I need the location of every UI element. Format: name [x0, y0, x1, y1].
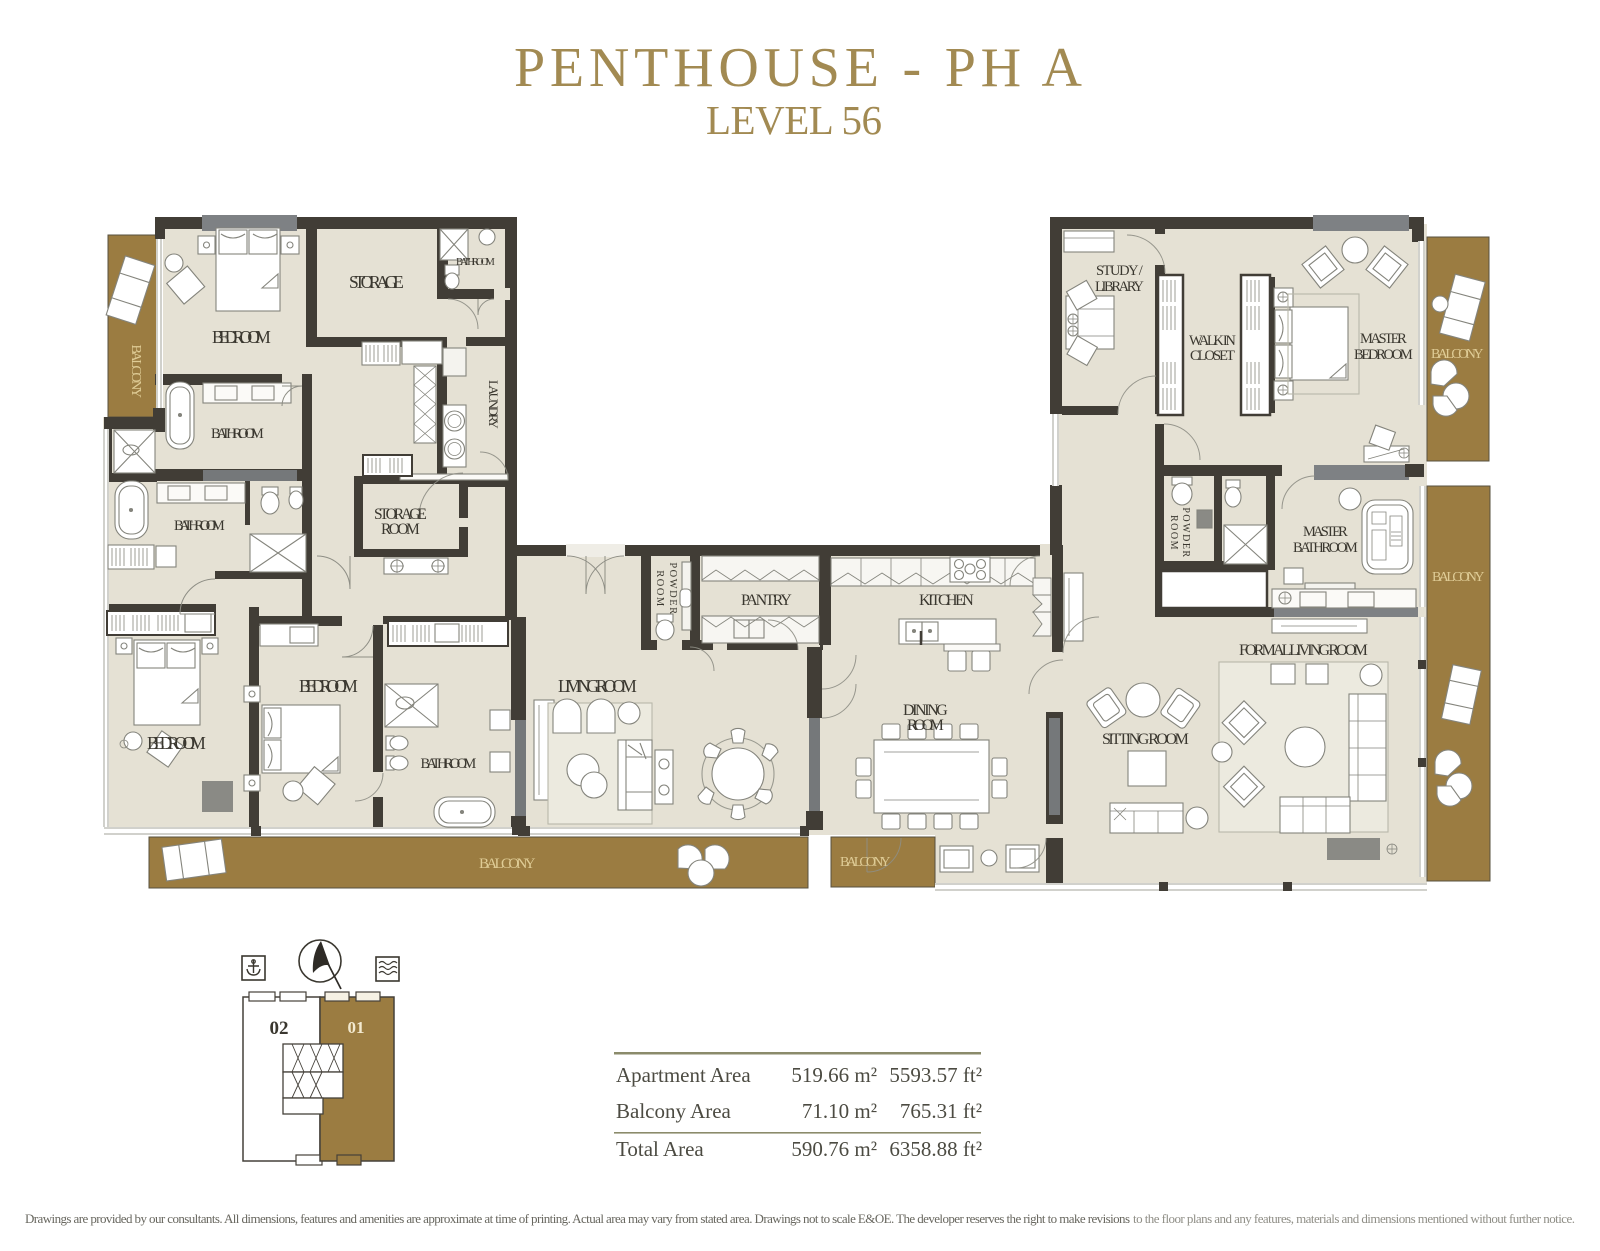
svg-text:71.10 m²: 71.10 m²: [802, 1099, 877, 1123]
svg-text:590.76 m²: 590.76 m²: [791, 1137, 877, 1161]
svg-text:MASTER: MASTER: [1360, 331, 1408, 347]
svg-text:LIVING ROOM: LIVING ROOM: [558, 676, 638, 696]
svg-text:Total Area: Total Area: [616, 1137, 704, 1161]
svg-text:LIBRARY: LIBRARY: [1095, 279, 1145, 295]
svg-text:BATHROOM: BATHROOM: [174, 518, 226, 534]
svg-text:PANTRY: PANTRY: [741, 592, 793, 609]
svg-text:WALK IN: WALK IN: [1189, 333, 1237, 349]
svg-text:BALCONY: BALCONY: [1432, 570, 1486, 585]
svg-text:BEDROOM: BEDROOM: [1354, 347, 1414, 363]
svg-text:BEDROOM: BEDROOM: [299, 676, 359, 696]
svg-text:BALCONY: BALCONY: [128, 345, 143, 400]
svg-text:POWDER: POWDER: [667, 562, 678, 615]
svg-text:SITTING ROOM: SITTING ROOM: [1102, 731, 1190, 748]
svg-text:BATHROOM: BATHROOM: [421, 756, 478, 772]
svg-text:BALCONY: BALCONY: [479, 856, 537, 872]
svg-text:CLOSET: CLOSET: [1190, 348, 1236, 364]
svg-text:BATHROOM: BATHROOM: [456, 257, 496, 268]
svg-text:PENTHOUSE - PH A: PENTHOUSE - PH A: [514, 37, 1086, 99]
svg-text:STUDY /: STUDY /: [1096, 263, 1144, 279]
svg-text:BATHROOM: BATHROOM: [211, 426, 265, 442]
svg-text:BALCONY: BALCONY: [1431, 347, 1485, 362]
svg-text:POWDER: POWDER: [1180, 507, 1191, 558]
svg-text:FORMAL LIVING ROOM: FORMAL LIVING ROOM: [1239, 642, 1369, 659]
svg-text:BEDROOM: BEDROOM: [147, 733, 207, 753]
svg-text:BATHROOM: BATHROOM: [1293, 540, 1359, 556]
svg-text:765.31 ft²: 765.31 ft²: [900, 1099, 982, 1123]
svg-text:01: 01: [348, 1018, 365, 1037]
svg-text:KITCHEN: KITCHEN: [919, 592, 975, 609]
svg-text:LEVEL 56: LEVEL 56: [706, 97, 884, 143]
svg-text:MASTER: MASTER: [1303, 524, 1349, 540]
svg-text:Drawings are provided by our c: Drawings are provided by our consultants…: [25, 1211, 1130, 1226]
svg-text:BEDROOM: BEDROOM: [212, 327, 272, 347]
svg-text:Balcony Area: Balcony Area: [616, 1099, 732, 1123]
svg-text:Apartment Area: Apartment Area: [616, 1063, 751, 1087]
svg-text:519.66 m²: 519.66 m²: [791, 1063, 877, 1087]
svg-text:5593.57 ft²: 5593.57 ft²: [889, 1063, 982, 1087]
svg-text:ROOM: ROOM: [1168, 515, 1179, 551]
svg-text:ROOM: ROOM: [381, 521, 421, 538]
svg-text:BALCONY: BALCONY: [840, 855, 892, 870]
svg-text:to the floor plans and any fea: to the floor plans and any features, mat…: [1133, 1211, 1575, 1226]
svg-text:STORAGE: STORAGE: [349, 272, 405, 292]
svg-text:6358.88 ft²: 6358.88 ft²: [889, 1137, 982, 1161]
svg-text:ROOM: ROOM: [907, 717, 945, 734]
svg-text:02: 02: [270, 1018, 289, 1039]
svg-text:ROOM: ROOM: [654, 570, 665, 608]
svg-text:LAUNDRY: LAUNDRY: [486, 380, 501, 430]
